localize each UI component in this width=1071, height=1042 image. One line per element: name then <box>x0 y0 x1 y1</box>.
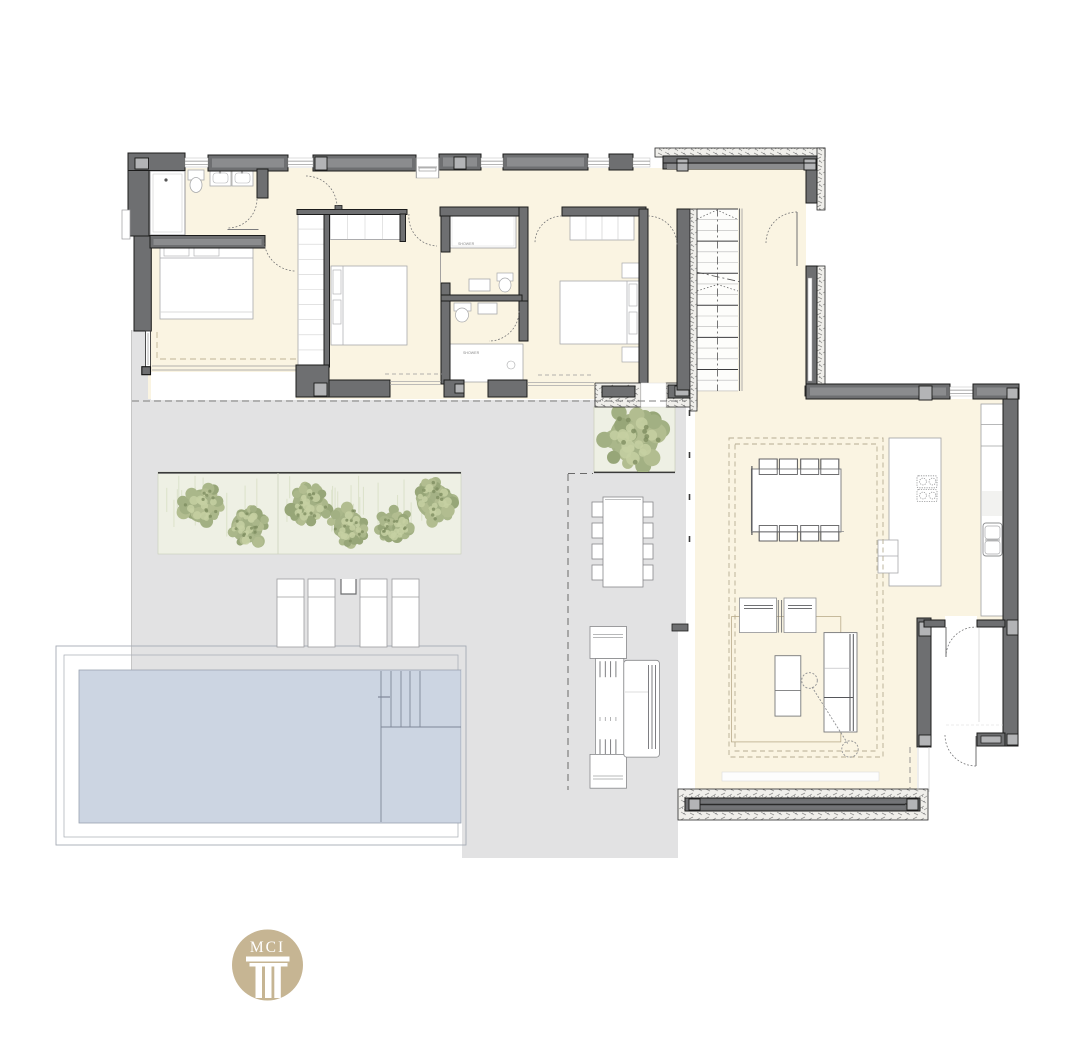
svg-text:SHOWER: SHOWER <box>463 351 480 355</box>
svg-text:MCI: MCI <box>250 939 285 956</box>
svg-text:SHOWER: SHOWER <box>458 242 475 246</box>
